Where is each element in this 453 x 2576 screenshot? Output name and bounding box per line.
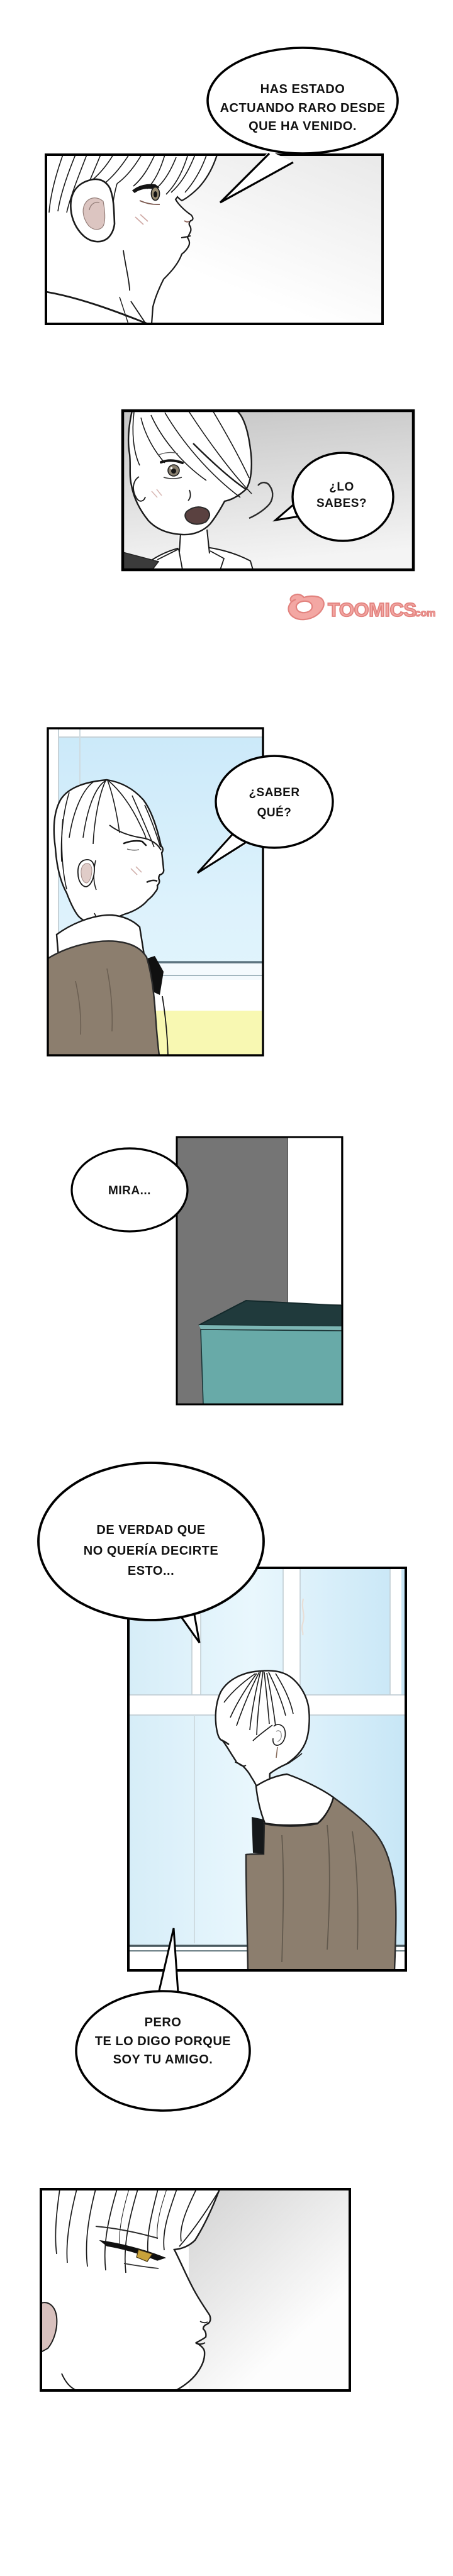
svg-text:QUÉ?: QUÉ?	[257, 806, 292, 819]
svg-text:SABES?: SABES?	[316, 497, 367, 510]
svg-text:.com: .com	[412, 608, 435, 619]
svg-text:MIRA...: MIRA...	[108, 1184, 151, 1197]
svg-text:TE LO DIGO PORQUE: TE LO DIGO PORQUE	[95, 2035, 231, 2048]
svg-text:ESTO...: ESTO...	[128, 1564, 174, 1578]
svg-text:TOOMICS: TOOMICS	[328, 599, 417, 621]
svg-text:PERO: PERO	[145, 2016, 182, 2029]
svg-text:HAS ESTADO: HAS ESTADO	[260, 82, 345, 96]
svg-text:¿SABER: ¿SABER	[249, 786, 299, 799]
svg-text:NO QUERÍA DECIRTE: NO QUERÍA DECIRTE	[84, 1543, 218, 1558]
svg-text:¿LO: ¿LO	[329, 480, 354, 494]
svg-text:QUE HA VENIDO.: QUE HA VENIDO.	[249, 119, 357, 133]
svg-text:DE VERDAD QUE: DE VERDAD QUE	[96, 1523, 205, 1537]
svg-text:SOY TU AMIGO.: SOY TU AMIGO.	[113, 2053, 213, 2067]
svg-text:ACTUANDO RARO DESDE: ACTUANDO RARO DESDE	[220, 101, 386, 115]
